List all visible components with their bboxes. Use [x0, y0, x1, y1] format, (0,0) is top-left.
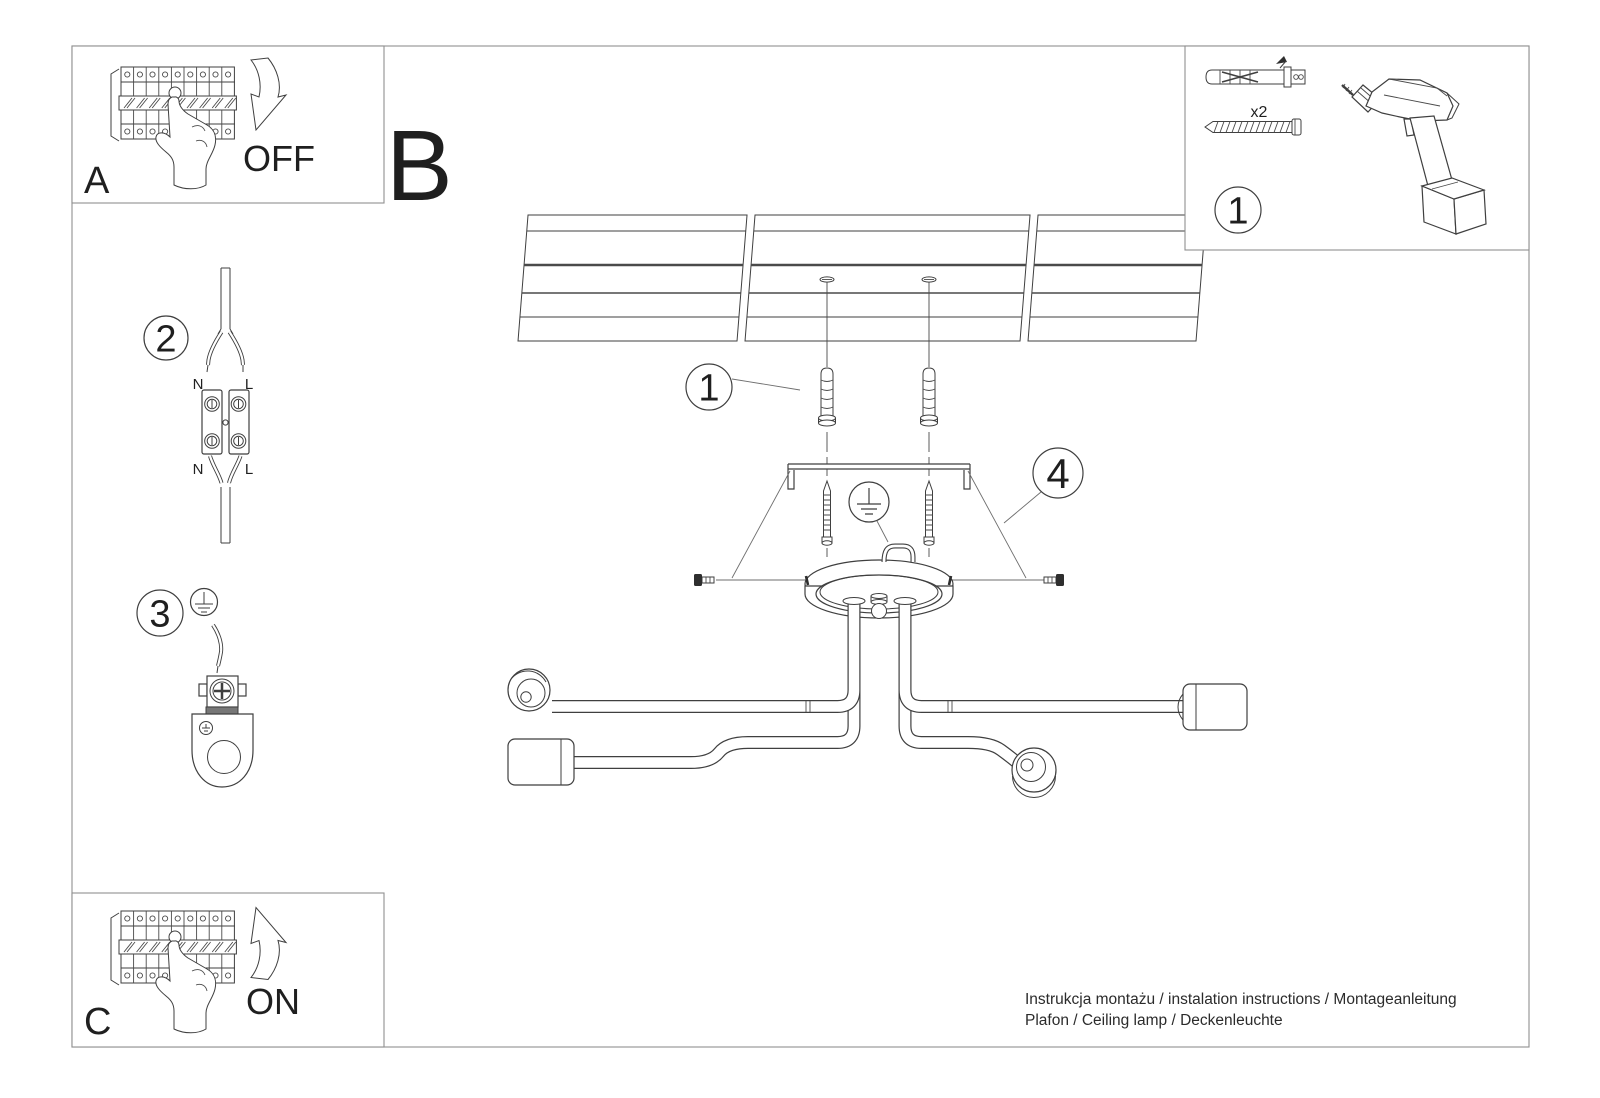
ground-wire — [213, 625, 221, 673]
lamp-head-lower-right — [1012, 748, 1056, 797]
footer: Instrukcja montażu / instalation instruc… — [1025, 991, 1457, 1029]
canopy-side-screw-left — [694, 574, 714, 586]
footer-line2: Plafon / Ceiling lamp / Deckenleuchte — [1025, 1012, 1283, 1029]
ceiling-planks — [518, 215, 1206, 341]
callout-1-label: 1 — [698, 368, 719, 410]
footer-line1: Instrukcja montażu / instalation instruc… — [1025, 991, 1457, 1008]
callout-3-label: 3 — [149, 594, 170, 636]
panel-c: ON C — [72, 893, 384, 1047]
anchor-qty-label: x2 — [1251, 104, 1268, 121]
on-label: ON — [246, 981, 300, 1022]
callout-1-tools-label: 1 — [1227, 191, 1248, 233]
step-a-label: A — [84, 160, 110, 202]
callout-2-label: 2 — [155, 319, 176, 361]
lamp-socket-lower-left — [508, 739, 574, 785]
callout-1-tools: 1 — [1215, 187, 1261, 233]
lamp-socket-right — [1178, 684, 1247, 730]
ground-leader-line — [877, 521, 888, 542]
callout-3: 3 — [137, 590, 183, 636]
canopy-side-screw-right — [1044, 574, 1064, 586]
wiring-figure: 2 N L N L — [144, 268, 253, 543]
wire-l-bottom-label: L — [245, 461, 253, 478]
step-b-label: B — [386, 110, 453, 222]
lamp-head-upper-left — [508, 669, 550, 711]
callout-4-label: 4 — [1046, 450, 1069, 497]
instruction-sheet: 1 4 OFF A B ON C 2 — [0, 0, 1600, 1098]
panel-a: OFF A — [72, 46, 384, 203]
lamp-arms — [552, 598, 1186, 765]
callout-4: 4 — [1004, 448, 1083, 523]
ground-terminal-icon — [192, 676, 253, 787]
off-label: OFF — [243, 138, 315, 179]
step-c-label: C — [84, 1001, 111, 1043]
wire-merge-bottom — [210, 456, 241, 543]
callout-1: 1 — [686, 364, 800, 410]
tools-box: x2 1 — [1185, 46, 1529, 250]
callout-2: 2 — [144, 316, 188, 361]
terminal-block-icon — [202, 390, 249, 454]
ground-symbol-icon — [849, 482, 889, 522]
ground-symbol-small-icon — [191, 589, 218, 616]
screw-horizontal-icon — [1205, 119, 1301, 135]
instruction-figure: 1 4 OFF A B ON C 2 — [0, 0, 1600, 1098]
wire-split-top — [207, 332, 243, 372]
wire-n-bottom-label: N — [193, 461, 204, 478]
grounding-figure: 3 — [137, 589, 253, 788]
